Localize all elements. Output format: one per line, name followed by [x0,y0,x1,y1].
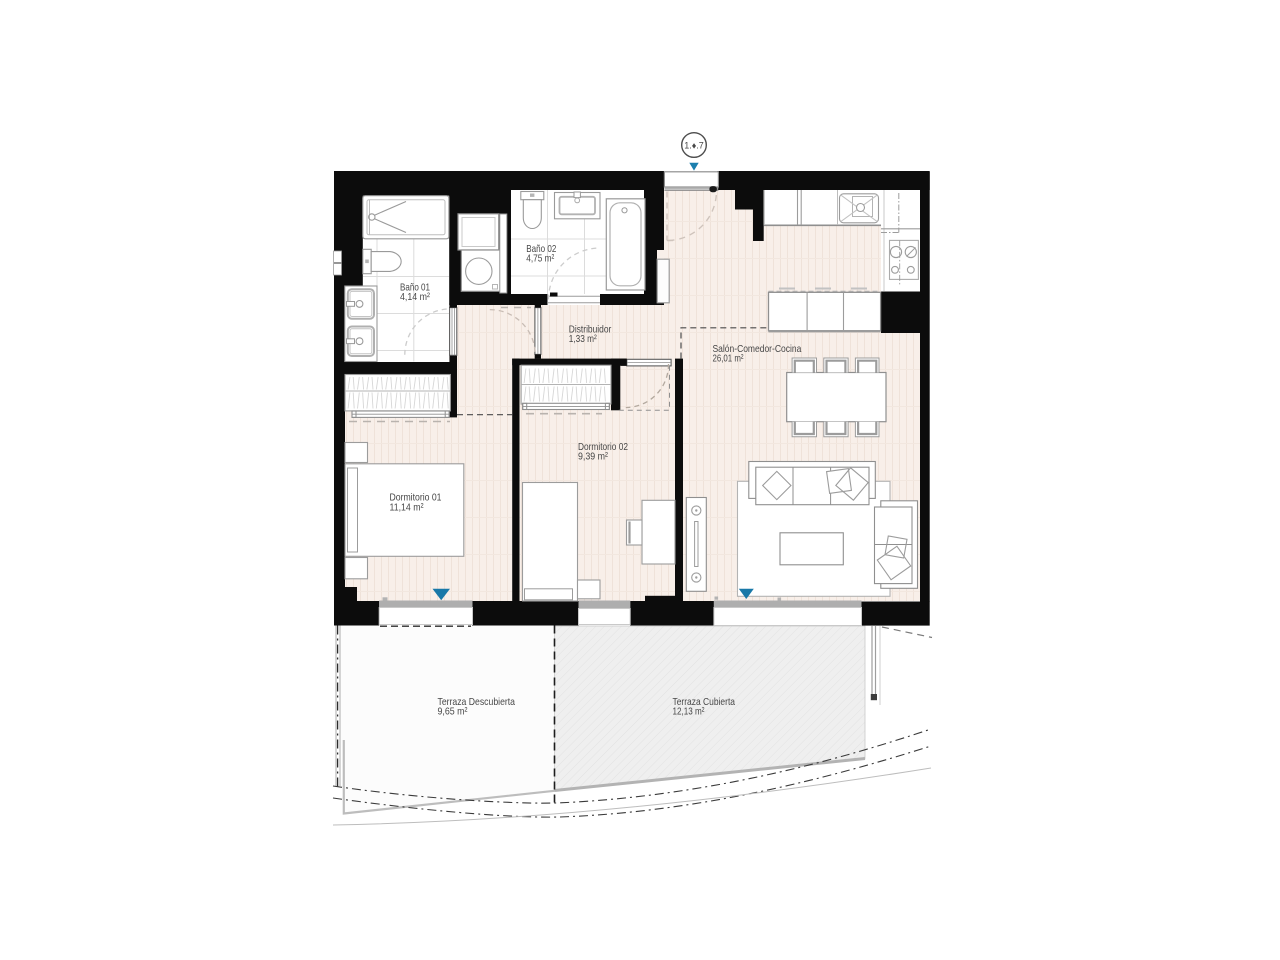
svg-text:9,65 m²: 9,65 m² [438,706,468,718]
svg-text:1,33 m²: 1,33 m² [569,333,597,345]
svg-text:4,75 m²: 4,75 m² [526,253,554,265]
svg-text:11,14 m²: 11,14 m² [390,501,424,513]
svg-text:4,14 m²: 4,14 m² [400,291,430,303]
svg-text:1.♦.7: 1.♦.7 [684,141,704,151]
svg-text:12,13 m²: 12,13 m² [673,706,705,718]
svg-text:9,39 m²: 9,39 m² [578,451,608,463]
svg-text:26,01 m²: 26,01 m² [713,353,744,365]
